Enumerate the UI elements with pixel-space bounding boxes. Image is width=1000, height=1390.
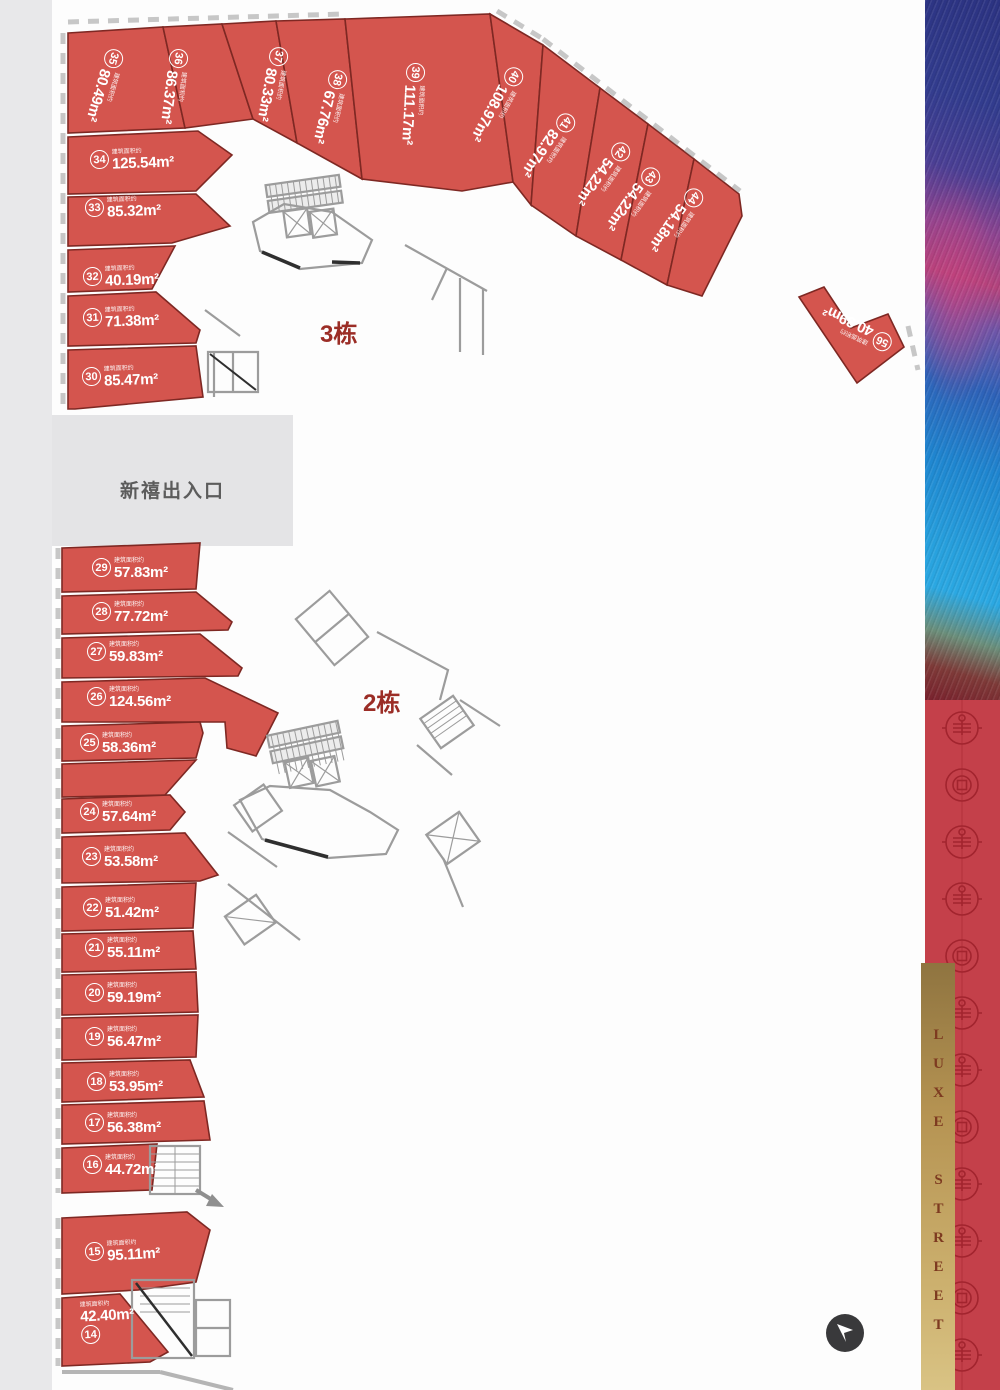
unit-label: 39 建筑面积约 111.17m² [399, 62, 425, 145]
unit-label: 19 建筑面积约 56.47m² [85, 1027, 161, 1049]
unit-number-badge: 30 [82, 367, 102, 387]
elevator-icon [283, 205, 337, 242]
unit-area-block: 建筑面积约 59.83m² [109, 642, 163, 664]
unit-area-block: 建筑面积约 71.38m² [105, 306, 160, 330]
unit-area-value: 111.17m² [399, 84, 417, 145]
area-prefix-label: 建筑面积约 [109, 1072, 163, 1078]
unit-area-block: 建筑面积约 85.32m² [107, 196, 162, 220]
unit-label: 33 建筑面积约 85.32m² [85, 196, 162, 221]
unit-area-value: 77.72m² [114, 609, 168, 624]
unit-area-value: 125.54m² [112, 154, 174, 171]
area-prefix-label: 建筑面积约 [102, 802, 156, 808]
unit-area-block: 建筑面积约 58.36m² [102, 733, 156, 755]
unit-number-badge: 20 [85, 983, 104, 1002]
unit-number-badge: 33 [85, 198, 105, 218]
unit-area-block: 建筑面积约 111.17m² [399, 84, 424, 145]
unit-label: 27 建筑面积约 59.83m² [87, 642, 163, 664]
building-3-units [68, 14, 904, 409]
unit-number-badge: 17 [85, 1113, 104, 1132]
unit-area-block: 建筑面积约 57.83m² [114, 558, 168, 580]
floorplan-page: 新禧出入口 3栋 2栋 35 建筑面积约 80.49m² 36 建筑面积约 86… [0, 0, 1000, 1390]
unit-area-block: 建筑面积约 125.54m² [112, 147, 175, 171]
unit-area-value: 53.58m² [104, 854, 158, 869]
unit-area-value: 85.32m² [107, 203, 161, 220]
unit-area-block: 建筑面积约 56.47m² [107, 1027, 161, 1049]
unit-area-value: 42.40m² [80, 1307, 134, 1325]
unit-label: 28 建筑面积约 77.72m² [92, 602, 168, 624]
unit-label: 21 建筑面积约 55.11m² [85, 938, 160, 960]
cursor-arrow-icon [826, 1314, 864, 1352]
unit-label: 25 建筑面积约 58.36m² [80, 733, 156, 755]
unit-label: 32 建筑面积约 40.19m² [83, 265, 160, 290]
unit-area-value: 124.56m² [109, 694, 171, 709]
unit-area-block: 建筑面积约 124.56m² [109, 687, 171, 709]
unit-label: 14 建筑面积约 42.40m² [79, 1300, 135, 1345]
unit-label: 29 建筑面积约 57.83m² [92, 558, 168, 580]
unit-number-badge: 19 [85, 1027, 104, 1046]
unit-number-badge: 15 [84, 1242, 104, 1262]
area-prefix-label: 建筑面积约 [107, 983, 161, 989]
unit-number-badge: 27 [87, 642, 106, 661]
unit-number-badge: 14 [81, 1325, 101, 1345]
unit-number-badge: 29 [92, 558, 111, 577]
unit-number-badge: 32 [83, 267, 103, 287]
unit-area-block: 建筑面积约 57.64m² [102, 802, 156, 824]
escalator-icon [267, 721, 346, 775]
unit-label: 26 建筑面积约 124.56m² [87, 687, 171, 709]
area-prefix-label: 建筑面积约 [105, 1155, 159, 1161]
unit-area-value: 57.64m² [102, 809, 156, 824]
unit-area-value: 71.38m² [105, 313, 159, 330]
unit-area-value: 59.19m² [107, 990, 161, 1005]
unit-area-value: 56.47m² [107, 1034, 161, 1049]
unit-number-badge: 16 [83, 1155, 102, 1174]
unit-number-badge: 18 [87, 1072, 106, 1091]
unit-area-block: 建筑面积约 53.95m² [109, 1072, 163, 1094]
unit-area-block: 建筑面积约 44.72m² [105, 1155, 159, 1177]
unit-label: 24 建筑面积约 57.64m² [80, 802, 156, 824]
unit-number-badge: 24 [80, 802, 99, 821]
unit-label: 18 建筑面积约 53.95m² [87, 1072, 163, 1094]
area-prefix-label: 建筑面积约 [107, 1027, 161, 1033]
unit-area-value: 58.36m² [102, 740, 156, 755]
unit-label: 23 建筑面积约 53.58m² [82, 847, 158, 869]
unit-label: 17 建筑面积约 56.38m² [85, 1113, 161, 1135]
unit-number-badge: 36 [168, 48, 189, 69]
unit-area-value: 53.95m² [109, 1079, 163, 1094]
area-prefix-label: 建筑面积约 [114, 602, 168, 608]
unit-number-badge: 37 [268, 46, 290, 68]
nav-arrow-button[interactable] [826, 1314, 864, 1352]
unit-area-block: 建筑面积约 42.40m² [79, 1300, 134, 1325]
unit-label: 22 建筑面积约 51.42m² [83, 898, 159, 920]
unit-number-badge: 26 [87, 687, 106, 706]
area-prefix-label: 建筑面积约 [109, 642, 163, 648]
unit-label: 20 建筑面积约 59.19m² [85, 983, 161, 1005]
unit-label: 34 建筑面积约 125.54m² [90, 147, 175, 172]
unit-label: 16 建筑面积约 44.72m² [83, 1155, 159, 1177]
unit-number-badge: 34 [90, 150, 110, 170]
unit-area-block: 建筑面积约 51.42m² [105, 898, 159, 920]
unit-number-badge: 22 [83, 898, 102, 917]
area-prefix-label: 建筑面积约 [109, 687, 171, 693]
luxe-street-label: LUXE STREET [930, 1027, 947, 1346]
unit-area-value: 85.47m² [104, 372, 158, 389]
unit-area-value: 59.83m² [109, 649, 163, 664]
unit-area-value: 57.83m² [114, 565, 168, 580]
luxe-street-band: LUXE STREET [921, 963, 955, 1390]
unit-area-block: 建筑面积约 56.38m² [107, 1113, 161, 1135]
unit-number-badge: 39 [406, 63, 426, 83]
unit-area-block: 建筑面积约 95.11m² [106, 1239, 160, 1264]
unit-label: 15 建筑面积约 95.11m² [84, 1239, 160, 1265]
unit-number-badge: 28 [92, 602, 111, 621]
building-3-label: 3栋 [320, 314, 357, 349]
unit-area-value: 44.72m² [105, 1162, 159, 1177]
area-prefix-label: 建筑面积约 [105, 898, 159, 904]
unit-area-block: 建筑面积约 40.19m² [105, 265, 160, 289]
unit-area-value: 40.19m² [105, 272, 159, 289]
unit-number-badge: 23 [82, 847, 101, 866]
area-prefix-label: 建筑面积约 [107, 938, 160, 944]
unit-number-badge: 21 [85, 938, 104, 957]
unit-area-block: 建筑面积约 53.58m² [104, 847, 158, 869]
unit-label: 30 建筑面积约 85.47m² [82, 365, 159, 390]
area-prefix-label: 建筑面积约 [104, 847, 158, 853]
area-prefix-label: 建筑面积约 [107, 1113, 161, 1119]
unit-label: 31 建筑面积约 71.38m² [83, 306, 160, 331]
building-3-core [205, 175, 487, 397]
brush-art-banner [925, 0, 1000, 700]
unit-area-value: 55.11m² [107, 945, 160, 960]
unit-area-block: 建筑面积约 55.11m² [107, 938, 160, 960]
entrance-label: 新禧出入口 [120, 476, 225, 503]
area-prefix-label: 建筑面积约 [102, 733, 156, 739]
building-2-label: 2栋 [363, 683, 400, 718]
unit-area-block: 建筑面积约 85.47m² [104, 365, 159, 389]
unit-area-value: 56.38m² [107, 1120, 161, 1135]
unit-number-badge: 25 [80, 733, 99, 752]
unit-area-value: 51.42m² [105, 905, 159, 920]
unit-area-block: 建筑面积约 77.72m² [114, 602, 168, 624]
unit-area-block: 建筑面积约 59.19m² [107, 983, 161, 1005]
unit-number-badge: 31 [83, 308, 103, 328]
unit-area-value: 95.11m² [107, 1246, 161, 1264]
area-prefix-label: 建筑面积约 [114, 558, 168, 564]
